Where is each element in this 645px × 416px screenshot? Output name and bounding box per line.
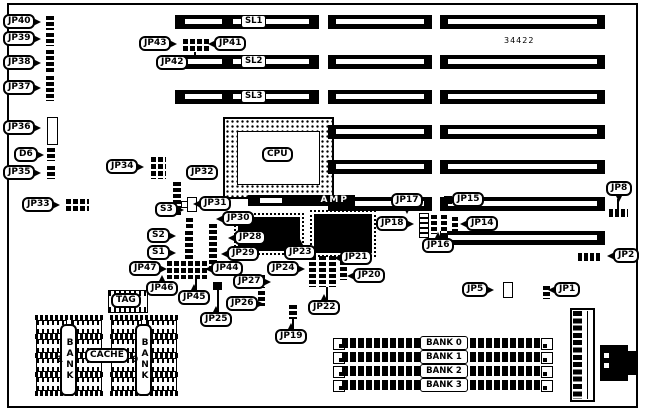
jp24-strip-1 (309, 256, 316, 287)
jumper-label-jp14: JP14 (466, 216, 498, 231)
jp8-jumper (609, 209, 628, 217)
switch-label-s1: S1 (147, 245, 170, 260)
s1-s2-strip (185, 231, 193, 265)
isa-slot-segment (328, 90, 432, 104)
power-connector (570, 308, 595, 402)
jumper-label-jp37: JP37 (3, 80, 35, 95)
jp18-component (419, 213, 429, 238)
keyboard-connector-neck (627, 351, 637, 375)
component-label-d6: D6 (14, 147, 38, 162)
jp35-jumper (47, 166, 55, 179)
jumper-label-jp25: JP25 (200, 312, 232, 327)
slot-label-sl1: SL1 (241, 15, 266, 28)
jumper-label-jp38: JP38 (3, 55, 35, 70)
jumper-label-jp20: JP20 (353, 268, 385, 283)
cache-label: CACHE (85, 348, 129, 363)
jumper-label-jp31: JP31 (199, 196, 231, 211)
jumper-label-jp28: JP28 (234, 230, 266, 245)
isa-slot-segment (328, 15, 432, 29)
jumper-label-jp2: JP2 (613, 248, 639, 263)
jp38-jumper (46, 50, 54, 73)
d6-component (47, 148, 55, 161)
jumper-label-jp36: JP36 (3, 120, 35, 135)
jp33-jumper-block (66, 199, 89, 212)
isa-slot-segment (440, 55, 605, 69)
jumper-label-jp46: JP46 (146, 281, 178, 296)
simm-bank1-label: BANK 1 (420, 350, 468, 364)
jumper-label-jp16: JP16 (422, 238, 454, 253)
jumper-label-jp45: JP45 (178, 290, 210, 305)
jp25-jumper (213, 282, 222, 290)
jumper-label-jp32: JP32 (186, 165, 218, 180)
jp41-43-jumper-block (183, 39, 210, 52)
jumper-label-jp21: JP21 (340, 250, 372, 265)
tag-label: TAG (111, 293, 141, 308)
jumper-label-jp22: JP22 (308, 300, 340, 315)
jumper-label-jp19: JP19 (275, 329, 307, 344)
jumper-label-jp15: JP15 (452, 192, 484, 207)
jp19-jumper (289, 305, 297, 319)
cpu-socket-lever: AMP (248, 195, 355, 206)
jumper-label-jp41: JP41 (214, 36, 246, 51)
jumper-label-jp1: JP1 (554, 282, 580, 297)
simm-bank3-label: BANK 3 (420, 378, 468, 392)
chipset-chip-right (314, 214, 372, 253)
motherboard-diagram: 34422 SL1 SL2 SL3 CPU AMP (0, 0, 645, 416)
jumper-label-jp24: JP24 (267, 261, 299, 276)
jumper-label-jp29: JP29 (227, 246, 259, 261)
isa-slot-segment (440, 90, 605, 104)
jumper-label-jp42: JP42 (156, 55, 188, 70)
simm-bank0-label: BANK 0 (420, 336, 468, 350)
cache-bank1-label: BANK 1 (60, 324, 77, 396)
isa-slot-segment (440, 125, 605, 139)
cpu-label: CPU (262, 147, 293, 162)
jumper-label-jp47: JP47 (129, 261, 161, 276)
slot-label-sl2: SL2 (241, 55, 266, 68)
jp14-jumper (452, 217, 458, 232)
jumper-label-jp18: JP18 (376, 216, 408, 231)
jp34-jumper-block (151, 157, 166, 179)
isa-slot-segment (440, 15, 605, 29)
jp5-component (503, 282, 513, 298)
keyboard-connector-pin2 (603, 362, 610, 369)
jumper-label-jp39: JP39 (3, 31, 35, 46)
amp-brand-text: AMP (320, 195, 349, 206)
isa-slot-segment (328, 55, 432, 69)
jumper-label-jp30: JP30 (222, 211, 254, 226)
jp40-jumper (46, 16, 54, 30)
jp39-jumper (46, 33, 54, 46)
jp44-47-jumper-block (167, 261, 208, 279)
switch-label-s2: S2 (147, 228, 170, 243)
jumper-label-jp23: JP23 (284, 245, 316, 260)
jumper-label-jp43: JP43 (139, 36, 171, 51)
isa-slot-segment (328, 160, 432, 174)
isa-slot-segment (440, 231, 605, 245)
jumper-label-jp33: JP33 (22, 197, 54, 212)
board-number: 34422 (504, 36, 534, 45)
cache-bank0-label: BANK 0 (135, 324, 152, 396)
s3-component (186, 218, 193, 229)
jumper-label-jp40: JP40 (3, 14, 35, 29)
keyboard-connector-pin1 (603, 352, 610, 359)
isa-slot-segment (440, 160, 605, 174)
jumper-label-jp17: JP17 (391, 193, 423, 208)
jumper-label-jp34: JP34 (106, 159, 138, 174)
switch-label-s3: S3 (155, 202, 178, 217)
jumper-label-jp5: JP5 (462, 282, 488, 297)
jumper-label-jp35: JP35 (3, 165, 35, 180)
isa-slot-segment (328, 125, 432, 139)
jumper-label-jp26: JP26 (226, 296, 258, 311)
jp36-component (47, 117, 58, 145)
jumper-label-jp8: JP8 (606, 181, 632, 196)
jp2-jumper (578, 253, 602, 261)
jp24-strip-2 (319, 256, 326, 287)
jp37-jumper (46, 76, 54, 101)
slot-label-sl3: SL3 (241, 90, 266, 103)
simm-bank2-label: BANK 2 (420, 364, 468, 378)
jumper-label-jp27: JP27 (233, 274, 265, 289)
